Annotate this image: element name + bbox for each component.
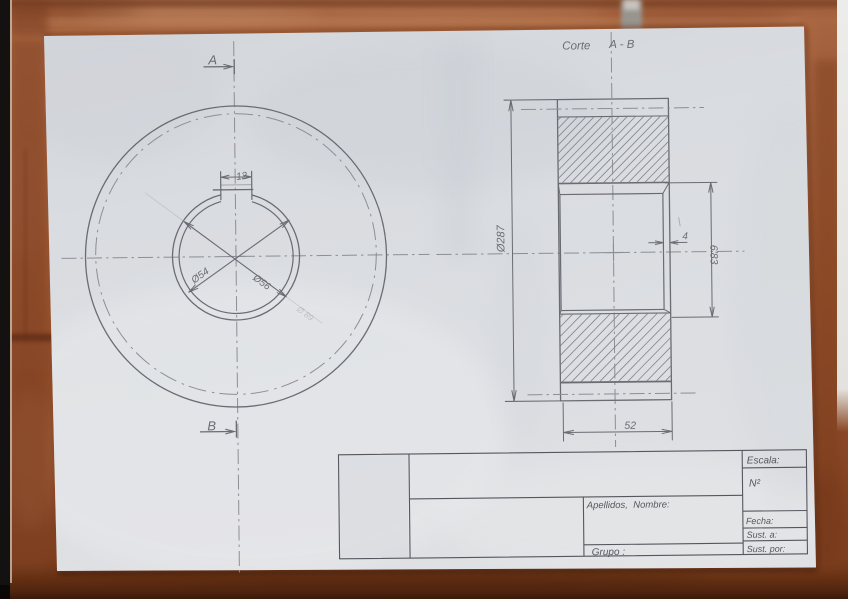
svg-text:12: 12 (235, 170, 248, 183)
svg-text:Fecha:: Fecha: (746, 516, 774, 526)
svg-text:4: 4 (682, 231, 688, 242)
svg-text:A: A (207, 52, 217, 67)
svg-text:52: 52 (624, 420, 636, 432)
svg-text:Ø287: Ø287 (495, 224, 507, 253)
svg-text:Sust. por:: Sust. por: (747, 544, 786, 554)
svg-text:Grupo :: Grupo : (592, 547, 626, 558)
svg-text:Escala:: Escala: (747, 455, 780, 466)
svg-text:6'83: 6'83 (707, 245, 719, 265)
svg-text:Corte: Corte (562, 40, 590, 52)
svg-text:A - B: A - B (608, 39, 635, 51)
svg-text:Apellidos, Nombre:: Apellidos, Nombre: (586, 499, 670, 511)
svg-text:Sust. a:: Sust. a: (747, 530, 778, 540)
svg-text:N²: N² (749, 477, 761, 489)
